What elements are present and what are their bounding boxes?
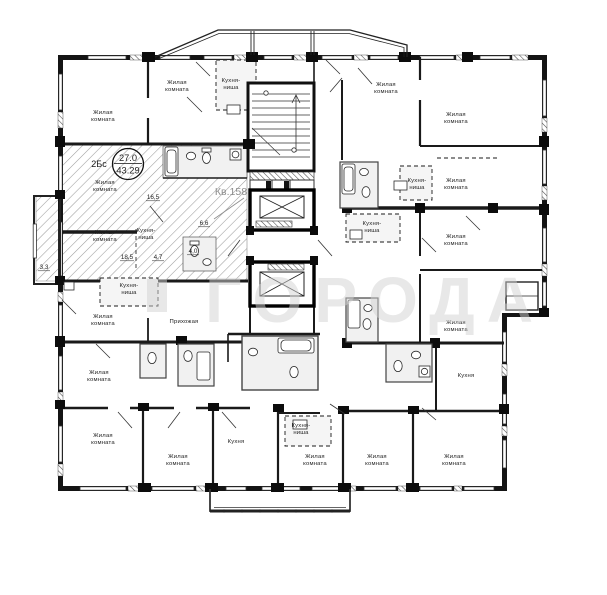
sink-icon bbox=[186, 152, 195, 160]
room-label-living-bottom-c: Жилаякомната bbox=[442, 454, 466, 467]
watermark: ГОРОДА bbox=[147, 264, 545, 336]
kitchen-sink-icon bbox=[350, 230, 362, 239]
window bbox=[420, 56, 454, 59]
window bbox=[88, 56, 126, 59]
window bbox=[543, 80, 546, 116]
window bbox=[464, 487, 494, 490]
room-label-living-right-b: Жилаякомната bbox=[444, 234, 468, 247]
window bbox=[152, 487, 194, 490]
window bbox=[80, 487, 126, 490]
room-label-living-top-mid: Жилаякомната bbox=[165, 80, 189, 93]
staircase bbox=[248, 83, 314, 190]
window bbox=[503, 332, 506, 362]
room-label-hallway: Прихожая bbox=[170, 319, 199, 325]
watermark-text: ГОРОДА bbox=[205, 264, 545, 336]
room-label-apt158-kitchen-niche: Кухня-ниша bbox=[137, 228, 156, 241]
room-label-kitchen-niche-right-b: Кухня-ниша bbox=[363, 221, 382, 234]
room-label-kitchen-niche-left: Кухня-ниша bbox=[120, 283, 139, 296]
area-hallway: 6,6 bbox=[200, 220, 209, 227]
watermark-logo-square bbox=[147, 279, 167, 312]
room-label-living-left-a: Жилаякомната bbox=[87, 370, 111, 383]
room-label-living-bottom-a: Жилаякомната bbox=[303, 454, 327, 467]
room-label-living-left-b: Жилаякомната bbox=[91, 314, 115, 327]
area-balcony: 3,3 bbox=[40, 264, 49, 271]
room-label-kitchen-bottom: Кухня bbox=[228, 439, 245, 445]
room-label-apt158-living-a: Жилаякомната bbox=[93, 180, 117, 193]
floor-plan-page: Жилаякомната Жилаякомната Кухня-ниша Жил… bbox=[0, 0, 607, 595]
window bbox=[59, 74, 62, 110]
room-label-living-bottom-b: Жилаякомната bbox=[365, 454, 389, 467]
window bbox=[264, 56, 292, 59]
window bbox=[226, 487, 246, 490]
window bbox=[59, 356, 62, 390]
room-label-kitchen-niche-bottom: Кухня-ниша bbox=[292, 423, 311, 436]
kitchen-sink-icon bbox=[64, 282, 74, 290]
room-label-living-bottom-d: Жилаякомната bbox=[166, 454, 190, 467]
window bbox=[543, 228, 546, 262]
kitchen-sink-icon bbox=[394, 181, 407, 190]
area-kitchen-niche: 4,7 bbox=[154, 254, 163, 261]
window bbox=[543, 150, 546, 184]
window bbox=[204, 56, 232, 59]
window bbox=[503, 440, 506, 468]
apartment-158-highlight[interactable] bbox=[36, 144, 247, 281]
room-label-kitchen-niche-top: Кухня-ниша bbox=[222, 78, 241, 91]
room-label-kitchen-niche-right-a: Кухня-ниша bbox=[408, 178, 427, 191]
room-label-living-top-left: Жилаякомната bbox=[91, 110, 115, 123]
unit-number-label[interactable]: Кв.158 bbox=[215, 186, 247, 198]
room-label-living-top-right-b: Жилаякомната bbox=[444, 112, 468, 125]
window bbox=[480, 56, 510, 59]
total-area-value: 43.29 bbox=[116, 166, 139, 176]
window bbox=[59, 156, 62, 192]
apartment-type: 2Бс bbox=[91, 159, 107, 169]
window bbox=[33, 224, 36, 258]
area-room-bottom: 18,5 bbox=[121, 254, 134, 261]
room-label-living-bottom-left: Жилаякомната bbox=[91, 433, 115, 446]
kitchen-sink-icon bbox=[227, 105, 240, 114]
floor-plan-drawing: Жилаякомната Жилаякомната Кухня-ниша Жил… bbox=[0, 0, 607, 595]
window bbox=[59, 426, 62, 462]
window bbox=[59, 305, 62, 339]
living-area-value: 27.0 bbox=[119, 153, 137, 163]
bottom-balcony bbox=[210, 489, 350, 513]
window bbox=[364, 487, 396, 490]
top-bay-window bbox=[155, 30, 407, 59]
room-label-apt158-living-b: Жилаякомната bbox=[93, 230, 117, 243]
area-bathroom: 4,0 bbox=[189, 248, 198, 255]
area-room-top: 16,5 bbox=[147, 194, 160, 201]
toilet-icon bbox=[203, 153, 211, 164]
window bbox=[420, 487, 452, 490]
window bbox=[322, 56, 352, 59]
room-label-living-right-a: Жилаякомната bbox=[444, 178, 468, 191]
room-label-kitchen-right: Кухня bbox=[458, 373, 475, 379]
room-label-living-top-right-a: Жилаякомната bbox=[374, 82, 398, 95]
window bbox=[370, 56, 398, 59]
elevator-shaft-1 bbox=[250, 190, 314, 230]
